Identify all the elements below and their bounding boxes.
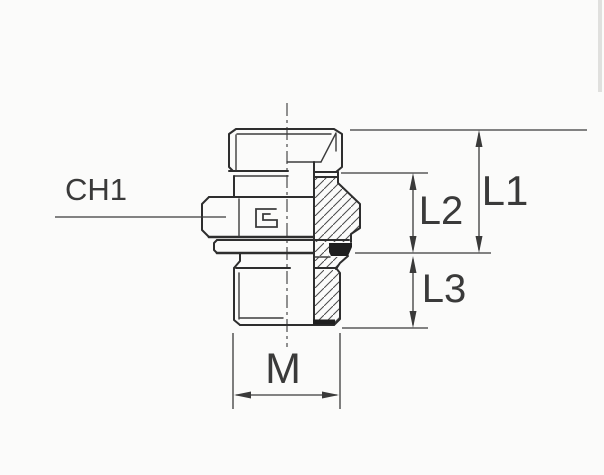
section-hatch-seal-strip: [314, 243, 329, 256]
dimension-labels: CH1 L1 L2 L3 M: [65, 167, 528, 393]
label-l1: L1: [482, 167, 529, 214]
port-cylinder-outline: [229, 129, 342, 172]
arrow-l2-down: [410, 236, 417, 253]
arrow-m-left: [234, 392, 251, 399]
soft-seal: [329, 243, 352, 256]
label-l3: L3: [422, 267, 467, 311]
section-hatch-stud: [314, 270, 340, 324]
arrow-l1-up: [476, 130, 483, 147]
stud-neck-left: [234, 253, 240, 268]
fitting-technical-drawing: CH1 L1 L2 L3 M: [0, 0, 604, 475]
label-l2: L2: [419, 189, 464, 233]
arrow-l2-up: [410, 173, 417, 190]
arrow-l1-down: [476, 236, 483, 253]
arrow-l3-down: [410, 311, 417, 328]
hex-stamp-mark: [256, 209, 277, 227]
internal-cone-line: [321, 133, 336, 162]
arrow-l3-up: [410, 256, 417, 273]
drawing-canvas: CH1 L1 L2 L3 M: [0, 0, 604, 475]
washer-left-edge: [214, 240, 217, 253]
port-cylinder: [229, 129, 342, 176]
scan-artifact: [598, 0, 602, 92]
label-m: M: [265, 345, 301, 393]
arrow-m-right: [322, 392, 339, 399]
label-ch1: CH1: [65, 172, 127, 207]
